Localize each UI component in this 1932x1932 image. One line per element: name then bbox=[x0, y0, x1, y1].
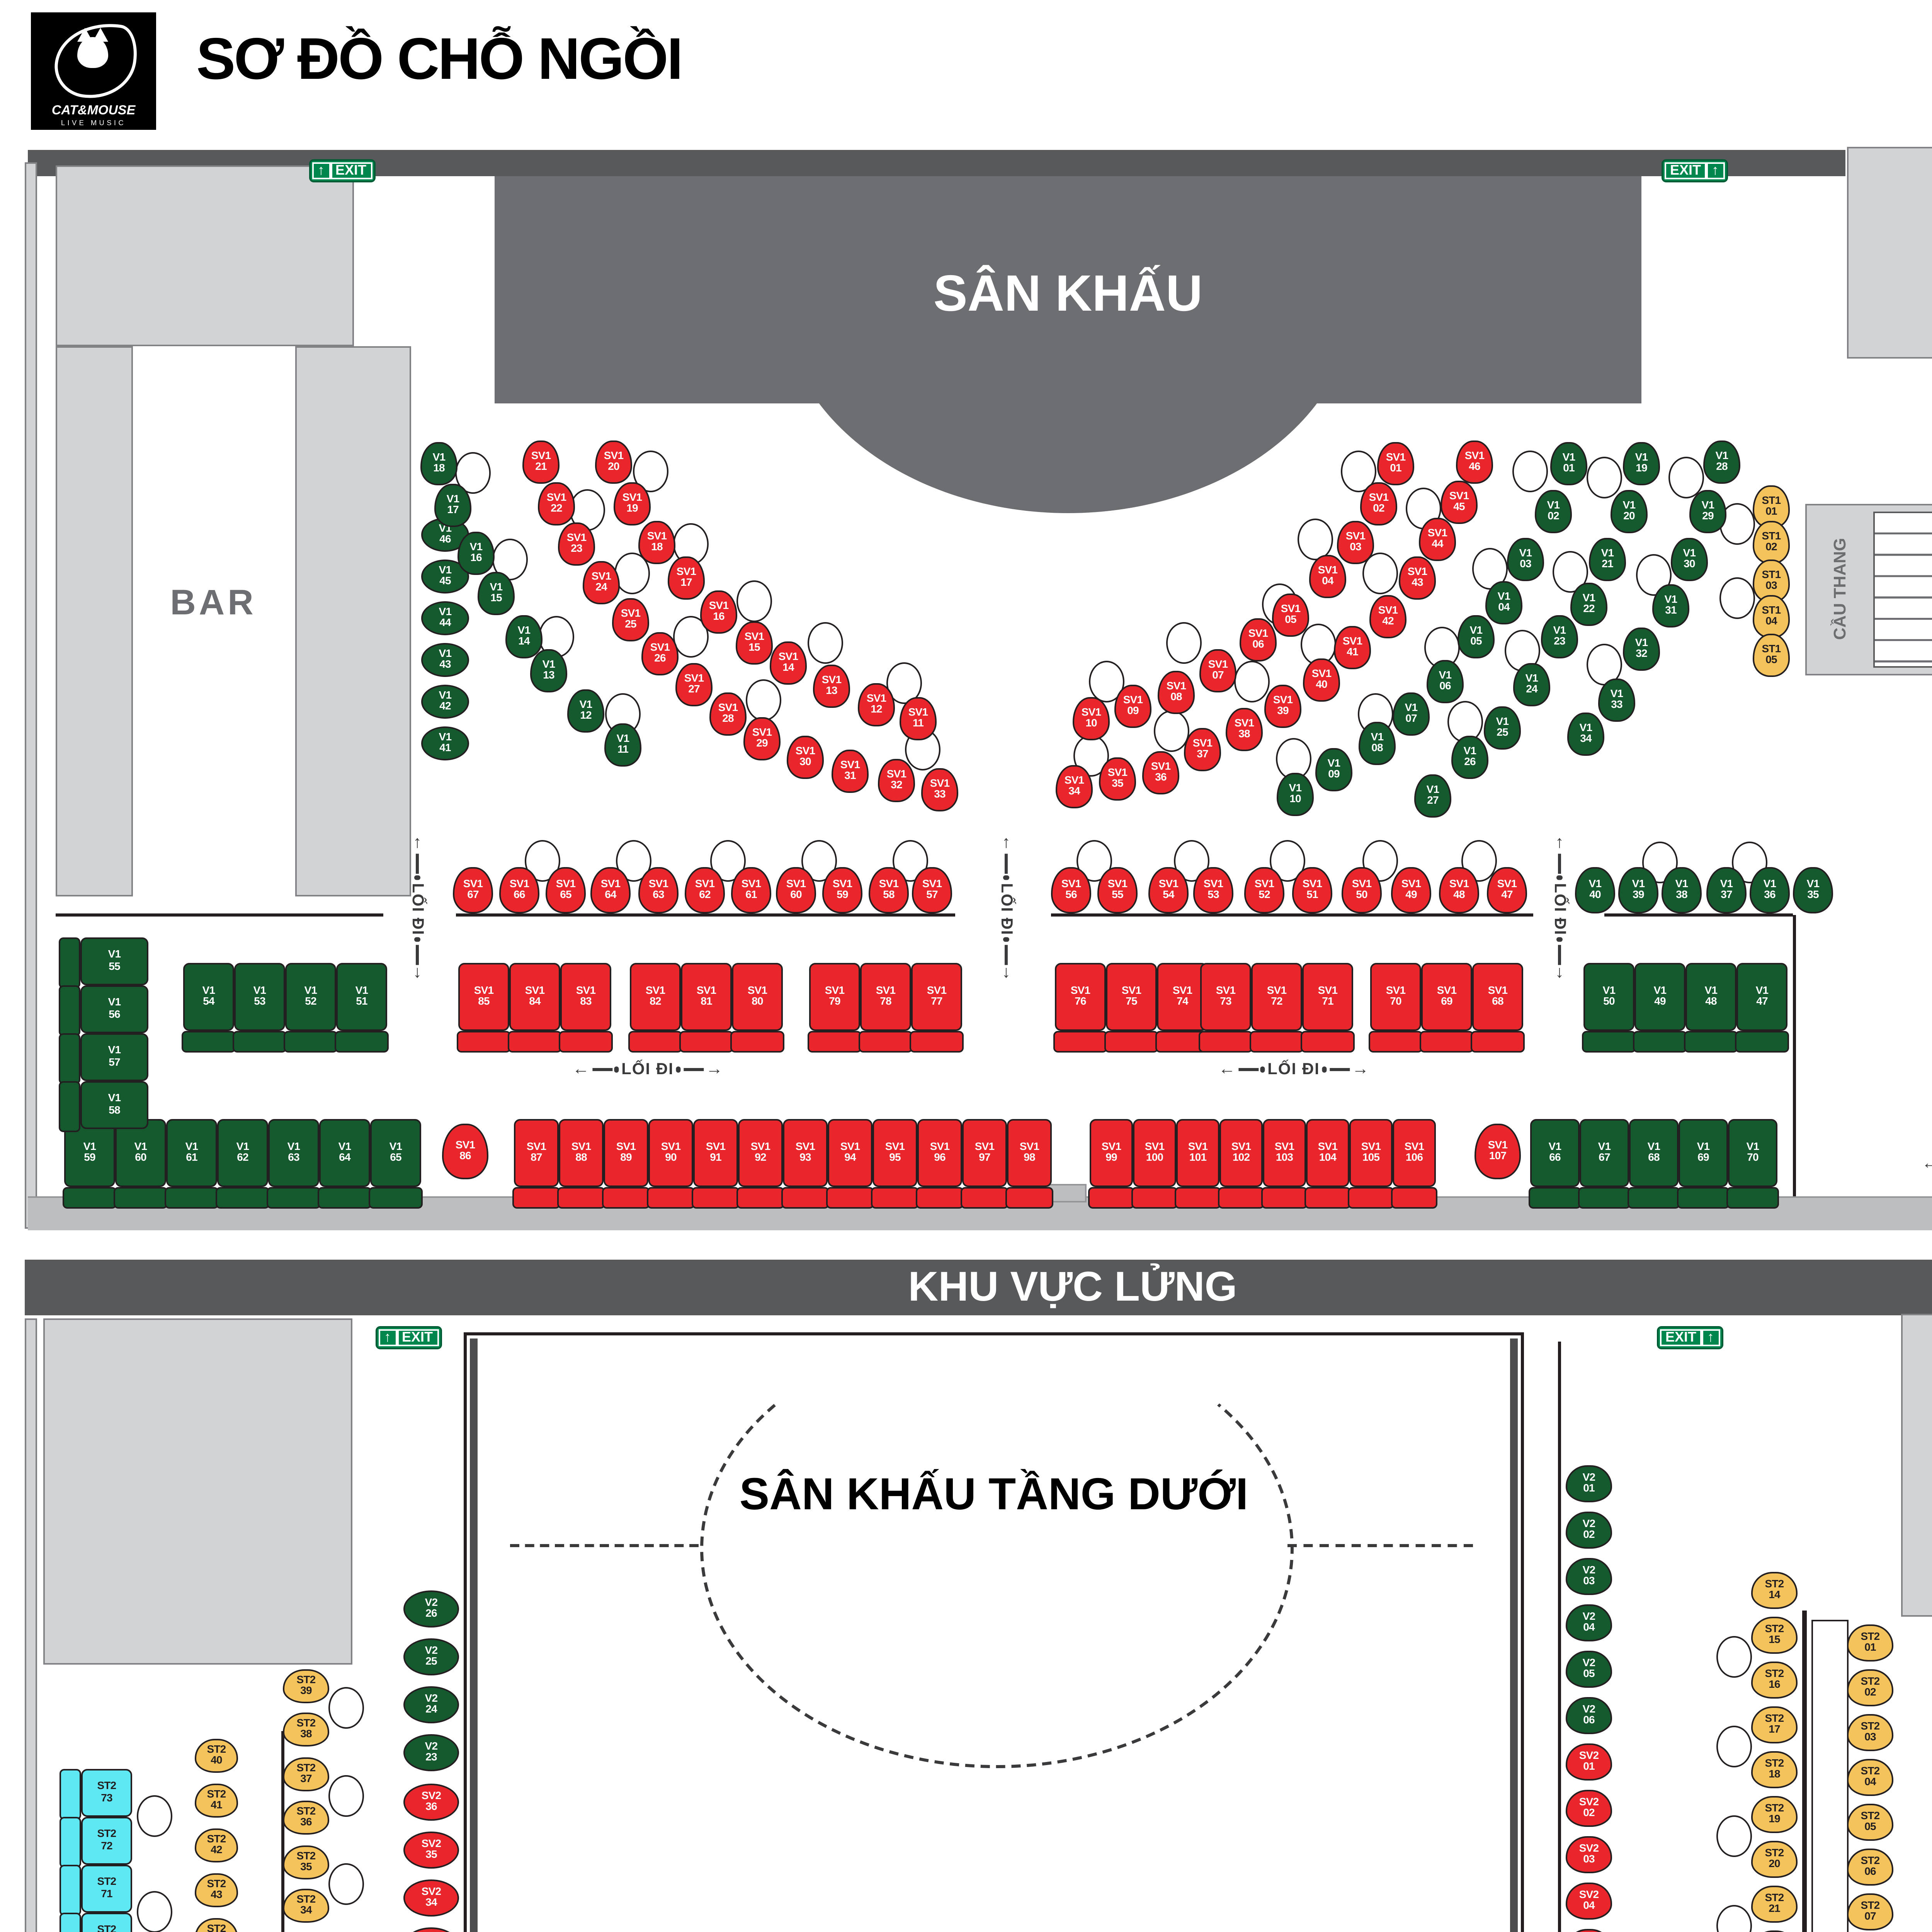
seat-sv2-34[interactable]: SV234 bbox=[403, 1879, 459, 1917]
seat-sv1-71[interactable]: SV171 bbox=[1302, 963, 1353, 1053]
seat-v1-19[interactable]: V119 bbox=[1623, 442, 1660, 485]
seat-label: SV1 bbox=[1071, 986, 1090, 997]
seat-v1-27[interactable]: V127 bbox=[1414, 774, 1451, 818]
seat-label: ST2 bbox=[1765, 1624, 1784, 1635]
seat-v1-70[interactable]: V170 bbox=[1728, 1119, 1777, 1209]
seat-sv1-12[interactable]: SV112 bbox=[858, 683, 895, 726]
seat-label: 22 bbox=[551, 504, 562, 515]
seat-sv1-84[interactable]: SV184 bbox=[509, 963, 560, 1053]
seat-st1-02[interactable]: ST102 bbox=[1753, 521, 1790, 564]
seat-label: 31 bbox=[844, 771, 856, 782]
seat-sv1-02[interactable]: SV102 bbox=[1360, 482, 1397, 526]
seat-label: V2 bbox=[425, 1742, 438, 1753]
seat-v1-61[interactable]: V161 bbox=[166, 1119, 217, 1209]
seat-sv1-87[interactable]: SV187 bbox=[514, 1119, 559, 1209]
seat-st2-37[interactable]: ST237 bbox=[283, 1757, 329, 1791]
sofa-backrest bbox=[216, 1187, 270, 1209]
seat-label: 23 bbox=[571, 544, 582, 555]
seat-st2-38[interactable]: ST238 bbox=[283, 1713, 329, 1747]
seat-label: SV1 bbox=[1061, 879, 1081, 890]
seat-sv1-26[interactable]: SV126 bbox=[641, 632, 679, 675]
seat-sv1-15[interactable]: SV115 bbox=[736, 621, 773, 665]
seat-v1-34[interactable]: V134 bbox=[1567, 713, 1604, 756]
seat-sv1-102[interactable]: SV1102 bbox=[1219, 1119, 1263, 1209]
seat-st1-04[interactable]: ST104 bbox=[1753, 595, 1790, 638]
seat-label: V1 bbox=[1526, 673, 1538, 685]
seat-sv1-101[interactable]: SV1101 bbox=[1176, 1119, 1219, 1209]
floor2-left-wall bbox=[25, 1318, 37, 1932]
seat-v1-30[interactable]: V130 bbox=[1671, 538, 1708, 581]
seat-label: SV1 bbox=[1020, 1142, 1039, 1153]
seat-v1-12[interactable]: V112 bbox=[567, 689, 604, 733]
seat-v1-07[interactable]: V107 bbox=[1393, 692, 1430, 736]
seat-v1-15[interactable]: V115 bbox=[478, 572, 515, 615]
seat-sv1-80[interactable]: SV180 bbox=[732, 963, 783, 1053]
seat-sv1-49[interactable]: SV149 bbox=[1391, 867, 1431, 913]
seat-st2-70[interactable]: ST270 bbox=[60, 1913, 132, 1932]
seat-label: 92 bbox=[755, 1153, 766, 1164]
seat-st2-36[interactable]: ST236 bbox=[283, 1801, 329, 1835]
seat-sv1-52[interactable]: SV152 bbox=[1244, 867, 1284, 913]
seat-v1-41[interactable]: V141 bbox=[421, 726, 469, 760]
seat-st2-73[interactable]: ST273 bbox=[60, 1769, 132, 1817]
seat-sv1-32[interactable]: SV132 bbox=[878, 759, 915, 802]
seat-v1-54[interactable]: V154 bbox=[183, 963, 234, 1053]
seat-sv1-40[interactable]: SV140 bbox=[1303, 658, 1340, 702]
seat-sv1-48[interactable]: SV148 bbox=[1439, 867, 1479, 913]
seat-sv2-33[interactable]: SV233 bbox=[403, 1927, 459, 1932]
seat-v1-55[interactable]: V155 bbox=[59, 937, 148, 985]
seat-v1-03[interactable]: V103 bbox=[1507, 538, 1544, 581]
seat-st2-14[interactable]: ST214 bbox=[1751, 1572, 1798, 1609]
seat-v1-43[interactable]: V143 bbox=[421, 643, 469, 677]
seat-v1-31[interactable]: V131 bbox=[1652, 584, 1689, 628]
seat-sv1-89[interactable]: SV189 bbox=[604, 1119, 648, 1209]
seat-v1-35[interactable]: V135 bbox=[1793, 867, 1833, 913]
seat-sv1-01[interactable]: SV101 bbox=[1377, 442, 1414, 485]
seat-st2-40[interactable]: ST240 bbox=[195, 1739, 238, 1773]
seat-label: 19 bbox=[626, 504, 638, 515]
seat-sv1-36[interactable]: SV136 bbox=[1142, 751, 1179, 794]
seat-v2-06[interactable]: V206 bbox=[1566, 1697, 1612, 1734]
seat-sv1-88[interactable]: SV188 bbox=[559, 1119, 604, 1209]
seat-v1-50[interactable]: V150 bbox=[1583, 963, 1634, 1053]
seat-st2-72[interactable]: ST272 bbox=[60, 1817, 132, 1865]
seat-sv1-86[interactable]: SV186 bbox=[442, 1124, 488, 1179]
seat-label: 63 bbox=[653, 890, 664, 901]
seat-sv1-24[interactable]: SV124 bbox=[583, 561, 620, 604]
seat-sv1-35[interactable]: SV135 bbox=[1099, 757, 1136, 801]
seat-sv2-05[interactable]: SV205 bbox=[1566, 1929, 1612, 1932]
seat-sv1-70[interactable]: SV170 bbox=[1370, 963, 1421, 1053]
seat-st2-42[interactable]: ST242 bbox=[195, 1828, 238, 1862]
seat-sv1-27[interactable]: SV127 bbox=[675, 663, 713, 706]
seat-sv1-51[interactable]: SV151 bbox=[1292, 867, 1332, 913]
seat-st2-02[interactable]: ST202 bbox=[1847, 1669, 1893, 1706]
seat-label: SV1 bbox=[975, 1142, 995, 1153]
seat-st2-06[interactable]: ST206 bbox=[1847, 1849, 1893, 1886]
seat-label: SV1 bbox=[930, 1142, 950, 1153]
seat-sv1-95[interactable]: SV195 bbox=[872, 1119, 917, 1209]
seat-st2-71[interactable]: ST271 bbox=[60, 1865, 132, 1913]
seat-label: V1 bbox=[439, 649, 452, 660]
seat-v1-21[interactable]: V121 bbox=[1589, 538, 1626, 581]
seat-sv1-11[interactable]: SV111 bbox=[900, 697, 937, 740]
sofa-body: SV172 bbox=[1251, 963, 1302, 1031]
seat-v1-69[interactable]: V169 bbox=[1679, 1119, 1728, 1209]
seat-label: SV1 bbox=[604, 451, 624, 462]
seat-st2-35[interactable]: ST235 bbox=[283, 1845, 329, 1879]
seat-sv1-46[interactable]: SV146 bbox=[1456, 440, 1493, 484]
seat-v1-38[interactable]: V138 bbox=[1662, 867, 1702, 913]
seat-sv1-34[interactable]: SV134 bbox=[1056, 765, 1093, 808]
seat-sv1-100[interactable]: SV1100 bbox=[1133, 1119, 1176, 1209]
bar-pillar-right bbox=[295, 346, 411, 896]
seat-v1-40[interactable]: V140 bbox=[1575, 867, 1615, 913]
seat-sv1-67[interactable]: SV167 bbox=[453, 867, 493, 913]
seat-sv1-20[interactable]: SV120 bbox=[595, 440, 632, 484]
seat-st2-04[interactable]: ST204 bbox=[1847, 1759, 1893, 1796]
seat-sv1-55[interactable]: SV155 bbox=[1097, 867, 1138, 913]
seat-v1-36[interactable]: V136 bbox=[1750, 867, 1790, 913]
seat-sv2-04[interactable]: SV204 bbox=[1566, 1883, 1612, 1920]
seat-v1-53[interactable]: V153 bbox=[234, 963, 285, 1053]
seat-sv1-59[interactable]: SV159 bbox=[822, 867, 862, 913]
seat-label: V1 bbox=[83, 1142, 96, 1153]
seat-sv2-36[interactable]: SV236 bbox=[403, 1784, 459, 1821]
seat-label: SV1 bbox=[718, 703, 738, 714]
seat-sv1-42[interactable]: SV142 bbox=[1369, 595, 1406, 638]
seat-sv1-03[interactable]: SV103 bbox=[1337, 521, 1374, 564]
table bbox=[1298, 519, 1333, 560]
seat-sv1-05[interactable]: SV105 bbox=[1272, 594, 1309, 637]
sofa-backrest bbox=[335, 1031, 389, 1053]
seat-sv1-96[interactable]: SV196 bbox=[917, 1119, 962, 1209]
seat-label: 78 bbox=[880, 997, 891, 1008]
seat-sv1-39[interactable]: SV139 bbox=[1264, 685, 1301, 728]
seat-st2-18[interactable]: ST218 bbox=[1751, 1751, 1798, 1788]
seat-sv1-83[interactable]: SV183 bbox=[560, 963, 611, 1053]
seat-sv1-47[interactable]: SV147 bbox=[1487, 867, 1527, 913]
seat-st2-22[interactable]: ST222 bbox=[1751, 1930, 1798, 1932]
seat-v1-32[interactable]: V132 bbox=[1623, 628, 1660, 671]
seat-v1-62[interactable]: V162 bbox=[217, 1119, 268, 1209]
seat-sv2-35[interactable]: SV235 bbox=[403, 1832, 459, 1869]
seat-sv1-105[interactable]: SV1105 bbox=[1349, 1119, 1393, 1209]
seat-v1-29[interactable]: V129 bbox=[1689, 490, 1726, 533]
seat-label: 02 bbox=[1765, 543, 1777, 554]
seat-sv1-79[interactable]: SV179 bbox=[809, 963, 860, 1053]
seat-label: SV1 bbox=[833, 879, 852, 890]
sofa-backrest bbox=[1088, 1187, 1134, 1209]
seat-label: SV1 bbox=[571, 1142, 591, 1153]
seat-sv1-99[interactable]: SV199 bbox=[1090, 1119, 1133, 1209]
seat-label: SV1 bbox=[677, 567, 696, 578]
seat-label: SV1 bbox=[1267, 986, 1287, 997]
seat-v2-01[interactable]: V201 bbox=[1566, 1465, 1612, 1502]
seat-v2-25[interactable]: V225 bbox=[403, 1638, 459, 1675]
seat-v1-02[interactable]: V102 bbox=[1535, 490, 1572, 533]
seat-st2-20[interactable]: ST220 bbox=[1751, 1841, 1798, 1878]
seat-v1-10[interactable]: V110 bbox=[1277, 773, 1314, 816]
seat-v1-60[interactable]: V160 bbox=[115, 1119, 166, 1209]
seat-label: V1 bbox=[1289, 783, 1302, 794]
seat-sv1-62[interactable]: SV162 bbox=[685, 867, 725, 913]
seat-sv1-14[interactable]: SV114 bbox=[770, 641, 807, 685]
seat-label: 37 bbox=[300, 1774, 312, 1786]
table bbox=[328, 1687, 364, 1729]
seat-label: 06 bbox=[1252, 640, 1264, 651]
seat-sv2-03[interactable]: SV203 bbox=[1566, 1836, 1612, 1873]
seat-sv1-65[interactable]: SV165 bbox=[546, 867, 586, 913]
seat-label: 106 bbox=[1406, 1153, 1423, 1164]
seat-label: SV1 bbox=[510, 879, 529, 890]
sofa-body: SV197 bbox=[962, 1119, 1007, 1187]
seat-v1-66[interactable]: V166 bbox=[1530, 1119, 1580, 1209]
seat-sv1-64[interactable]: SV164 bbox=[590, 867, 631, 913]
seat-label: SV1 bbox=[1273, 695, 1293, 706]
seat-sv1-94[interactable]: SV194 bbox=[828, 1119, 872, 1209]
seat-label: 93 bbox=[799, 1153, 811, 1164]
seat-label: 29 bbox=[756, 739, 768, 750]
seat-v1-13[interactable]: V113 bbox=[530, 649, 567, 692]
seat-sv1-10[interactable]: SV110 bbox=[1073, 697, 1110, 740]
seat-sv1-106[interactable]: SV1106 bbox=[1393, 1119, 1436, 1209]
sofa-backrest bbox=[826, 1187, 874, 1209]
seat-st2-15[interactable]: ST215 bbox=[1751, 1617, 1798, 1654]
seat-v2-03[interactable]: V203 bbox=[1566, 1558, 1612, 1595]
seat-sv1-25[interactable]: SV125 bbox=[612, 598, 649, 641]
seat-v1-48[interactable]: V148 bbox=[1685, 963, 1736, 1053]
sofa-body: SV184 bbox=[509, 963, 560, 1031]
seat-v1-64[interactable]: V164 bbox=[319, 1119, 370, 1209]
seat-v1-39[interactable]: V139 bbox=[1618, 867, 1658, 913]
seat-label: 58 bbox=[109, 1105, 120, 1116]
seat-sv1-54[interactable]: SV154 bbox=[1148, 867, 1189, 913]
seat-sv1-82[interactable]: SV182 bbox=[630, 963, 681, 1053]
seat-sv1-45[interactable]: SV145 bbox=[1440, 481, 1478, 524]
seat-v1-23[interactable]: V123 bbox=[1541, 615, 1578, 658]
seat-label: V1 bbox=[470, 542, 483, 553]
seat-label: SV1 bbox=[779, 652, 798, 663]
seat-sv1-06[interactable]: SV106 bbox=[1240, 618, 1277, 662]
sofa-body: V164 bbox=[319, 1119, 370, 1187]
seat-sv1-16[interactable]: SV116 bbox=[700, 590, 737, 634]
seat-v1-67[interactable]: V167 bbox=[1580, 1119, 1629, 1209]
seat-sv1-60[interactable]: SV160 bbox=[776, 867, 816, 913]
seat-st2-34[interactable]: ST234 bbox=[283, 1889, 329, 1923]
seat-sv1-43[interactable]: SV143 bbox=[1399, 556, 1436, 600]
seat-v2-26[interactable]: V226 bbox=[403, 1590, 459, 1628]
seat-sv1-75[interactable]: SV175 bbox=[1106, 963, 1157, 1053]
sofa-body: V154 bbox=[183, 963, 234, 1031]
seat-st2-16[interactable]: ST216 bbox=[1751, 1662, 1798, 1699]
seat-sv1-56[interactable]: SV156 bbox=[1051, 867, 1091, 913]
seat-sv1-66[interactable]: SV166 bbox=[499, 867, 539, 913]
seat-sv1-98[interactable]: SV198 bbox=[1007, 1119, 1052, 1209]
seat-v1-05[interactable]: V105 bbox=[1458, 615, 1495, 658]
seat-st1-05[interactable]: ST105 bbox=[1753, 634, 1790, 677]
seat-sv1-19[interactable]: SV119 bbox=[614, 482, 651, 526]
seat-sv1-08[interactable]: SV108 bbox=[1158, 671, 1195, 714]
seat-st2-44[interactable]: ST244 bbox=[195, 1918, 238, 1932]
seat-v1-42[interactable]: V142 bbox=[421, 685, 469, 719]
seat-sv1-58[interactable]: SV158 bbox=[869, 867, 909, 913]
seat-sv1-30[interactable]: SV130 bbox=[787, 736, 824, 779]
seat-v1-63[interactable]: V163 bbox=[268, 1119, 319, 1209]
seat-st2-43[interactable]: ST243 bbox=[195, 1873, 238, 1907]
seat-v1-57[interactable]: V157 bbox=[59, 1033, 148, 1081]
seat-sv1-97[interactable]: SV197 bbox=[962, 1119, 1007, 1209]
seat-sv1-07[interactable]: SV107 bbox=[1199, 649, 1236, 692]
seat-sv1-103[interactable]: SV1103 bbox=[1263, 1119, 1306, 1209]
seat-sv1-63[interactable]: SV163 bbox=[638, 867, 679, 913]
seat-v1-33[interactable]: V133 bbox=[1598, 679, 1635, 722]
seat-sv1-53[interactable]: SV153 bbox=[1193, 867, 1233, 913]
seat-sv1-90[interactable]: SV190 bbox=[648, 1119, 693, 1209]
seat-st2-05[interactable]: ST205 bbox=[1847, 1804, 1893, 1841]
seat-v1-47[interactable]: V147 bbox=[1736, 963, 1787, 1053]
seat-st2-01[interactable]: ST201 bbox=[1847, 1624, 1893, 1662]
seat-sv2-01[interactable]: SV201 bbox=[1566, 1743, 1612, 1781]
seat-sv1-91[interactable]: SV191 bbox=[693, 1119, 738, 1209]
seat-v1-22[interactable]: V122 bbox=[1570, 583, 1607, 626]
seat-sv1-31[interactable]: SV131 bbox=[832, 750, 869, 793]
seat-label: SV1 bbox=[887, 769, 906, 781]
seat-v2-04[interactable]: V204 bbox=[1566, 1604, 1612, 1641]
seat-label: ST2 bbox=[1765, 1669, 1784, 1680]
seat-v1-68[interactable]: V168 bbox=[1629, 1119, 1679, 1209]
seat-label: 68 bbox=[1648, 1153, 1660, 1164]
seat-v1-26[interactable]: V126 bbox=[1451, 736, 1488, 779]
seat-st2-21[interactable]: ST221 bbox=[1751, 1886, 1798, 1923]
seat-label: V1 bbox=[389, 1142, 402, 1153]
seat-sv1-93[interactable]: SV193 bbox=[783, 1119, 828, 1209]
seat-sv2-02[interactable]: SV202 bbox=[1566, 1790, 1612, 1827]
seat-label: 26 bbox=[654, 654, 666, 665]
seat-v2-23[interactable]: V223 bbox=[403, 1734, 459, 1771]
seat-label: V1 bbox=[543, 660, 555, 671]
seat-sv1-78[interactable]: SV178 bbox=[860, 963, 911, 1053]
seat-label: V1 bbox=[1547, 500, 1560, 512]
seat-sv1-107[interactable]: SV1107 bbox=[1475, 1124, 1521, 1179]
seat-label: 05 bbox=[1864, 1822, 1876, 1833]
seat-sv1-104[interactable]: SV1104 bbox=[1306, 1119, 1349, 1209]
seat-v2-24[interactable]: V224 bbox=[403, 1686, 459, 1723]
seat-v1-52[interactable]: V152 bbox=[285, 963, 336, 1053]
seat-label: 97 bbox=[979, 1153, 990, 1164]
seat-v1-01[interactable]: V101 bbox=[1550, 442, 1587, 485]
seat-sv1-76[interactable]: SV176 bbox=[1055, 963, 1106, 1053]
seat-label: SV1 bbox=[709, 601, 729, 612]
seat-v2-02[interactable]: V202 bbox=[1566, 1512, 1612, 1549]
seat-v1-28[interactable]: V128 bbox=[1703, 440, 1740, 484]
seat-sv1-41[interactable]: SV141 bbox=[1334, 626, 1371, 669]
seat-st2-41[interactable]: ST241 bbox=[195, 1784, 238, 1818]
seat-sv1-57[interactable]: SV157 bbox=[912, 867, 952, 913]
seat-st2-19[interactable]: ST219 bbox=[1751, 1796, 1798, 1833]
seat-v1-49[interactable]: V149 bbox=[1634, 963, 1685, 1053]
seat-sv1-21[interactable]: SV121 bbox=[522, 440, 560, 484]
seat-v1-58[interactable]: V158 bbox=[59, 1081, 148, 1129]
sofa-body: V170 bbox=[1728, 1119, 1777, 1187]
seat-sv1-68[interactable]: SV168 bbox=[1472, 963, 1523, 1053]
seat-sv1-72[interactable]: SV172 bbox=[1251, 963, 1302, 1053]
seat-st2-17[interactable]: ST217 bbox=[1751, 1706, 1798, 1743]
seat-label: 24 bbox=[425, 1705, 437, 1716]
seat-v1-04[interactable]: V104 bbox=[1485, 581, 1522, 624]
seat-v1-59[interactable]: V159 bbox=[64, 1119, 115, 1209]
exit-sign-floor2-left: ↑EXIT bbox=[376, 1326, 441, 1349]
seat-label: SV1 bbox=[1188, 1142, 1208, 1153]
seat-sv1-04[interactable]: SV104 bbox=[1309, 555, 1346, 598]
sofa-backrest bbox=[730, 1031, 784, 1053]
seat-label: SV1 bbox=[649, 879, 668, 890]
seat-v1-20[interactable]: V120 bbox=[1611, 490, 1648, 533]
stairs-label: CẦU THANG bbox=[1832, 538, 1850, 640]
seat-label: 67 bbox=[467, 890, 479, 901]
seat-v1-14[interactable]: V114 bbox=[505, 615, 543, 658]
seat-sv1-73[interactable]: SV173 bbox=[1200, 963, 1251, 1053]
seat-v1-65[interactable]: V165 bbox=[370, 1119, 421, 1209]
seat-label: 79 bbox=[829, 997, 840, 1008]
seat-label: 22 bbox=[1583, 604, 1595, 616]
seat-sv1-09[interactable]: SV109 bbox=[1114, 685, 1151, 728]
seat-sv1-38[interactable]: SV138 bbox=[1226, 708, 1263, 751]
seat-v1-37[interactable]: V137 bbox=[1706, 867, 1747, 913]
seat-sv1-13[interactable]: SV113 bbox=[813, 665, 850, 708]
seat-v2-05[interactable]: V205 bbox=[1566, 1651, 1612, 1688]
seat-sv1-92[interactable]: SV192 bbox=[738, 1119, 783, 1209]
seat-v1-08[interactable]: V108 bbox=[1359, 722, 1396, 765]
seat-st2-07[interactable]: ST207 bbox=[1847, 1893, 1893, 1930]
seat-st2-39[interactable]: ST239 bbox=[283, 1669, 329, 1703]
seat-v1-09[interactable]: V109 bbox=[1315, 748, 1352, 791]
seat-label: 20 bbox=[1769, 1859, 1780, 1871]
seat-label: 103 bbox=[1276, 1153, 1293, 1164]
seat-sv1-37[interactable]: SV137 bbox=[1184, 728, 1221, 771]
seat-sv1-69[interactable]: SV169 bbox=[1421, 963, 1472, 1053]
seat-sv1-33[interactable]: SV133 bbox=[921, 768, 958, 811]
seat-sv1-28[interactable]: SV128 bbox=[709, 692, 747, 736]
table bbox=[1716, 1726, 1752, 1767]
seat-sv1-22[interactable]: SV122 bbox=[538, 482, 575, 526]
sofa-body: SV193 bbox=[783, 1119, 828, 1187]
seat-sv1-50[interactable]: SV150 bbox=[1342, 867, 1382, 913]
seat-sv1-17[interactable]: SV117 bbox=[668, 556, 705, 600]
seat-sv1-81[interactable]: SV181 bbox=[681, 963, 732, 1053]
seat-v1-51[interactable]: V151 bbox=[336, 963, 387, 1053]
seat-sv1-77[interactable]: SV177 bbox=[911, 963, 962, 1053]
seat-v1-17[interactable]: V117 bbox=[434, 484, 471, 527]
seat-sv1-85[interactable]: SV185 bbox=[458, 963, 509, 1053]
seat-v1-25[interactable]: V125 bbox=[1484, 706, 1521, 750]
seat-v1-16[interactable]: V116 bbox=[457, 532, 495, 575]
seat-label: 08 bbox=[1170, 692, 1182, 704]
seat-v1-44[interactable]: V144 bbox=[421, 601, 469, 635]
seat-v1-24[interactable]: V124 bbox=[1513, 663, 1550, 706]
seat-sv1-29[interactable]: SV129 bbox=[743, 717, 781, 760]
seat-st2-03[interactable]: ST203 bbox=[1847, 1714, 1893, 1751]
seat-sv1-23[interactable]: SV123 bbox=[558, 522, 595, 566]
seat-v1-11[interactable]: V111 bbox=[604, 723, 641, 767]
seat-v1-56[interactable]: V156 bbox=[59, 985, 148, 1033]
seat-v1-18[interactable]: V118 bbox=[420, 442, 457, 485]
seat-sv1-44[interactable]: SV144 bbox=[1419, 518, 1456, 561]
seat-sv1-61[interactable]: SV161 bbox=[731, 867, 771, 913]
seat-sv1-18[interactable]: SV118 bbox=[638, 521, 675, 564]
seat-v1-06[interactable]: V106 bbox=[1427, 660, 1464, 703]
